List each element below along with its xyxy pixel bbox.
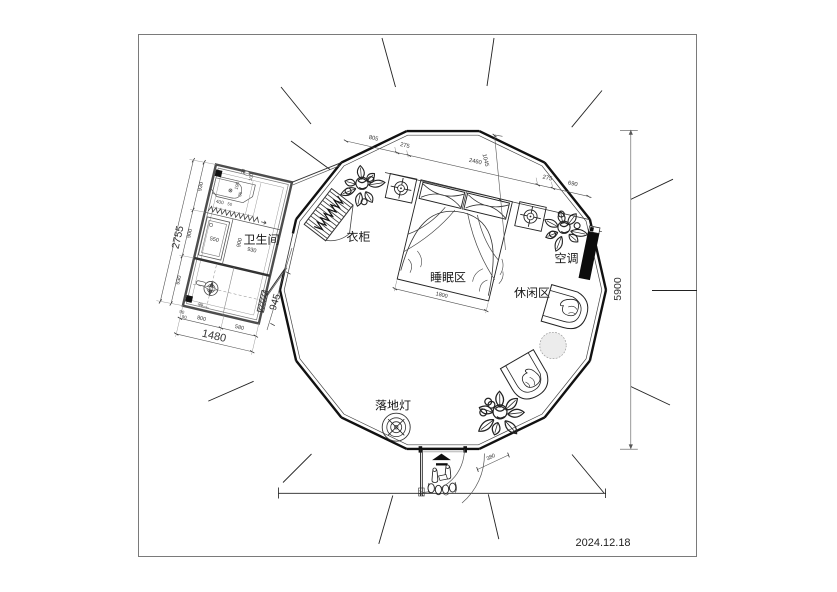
svg-text:2024.12.18: 2024.12.18 [576, 537, 631, 549]
svg-text:5900: 5900 [612, 277, 624, 301]
